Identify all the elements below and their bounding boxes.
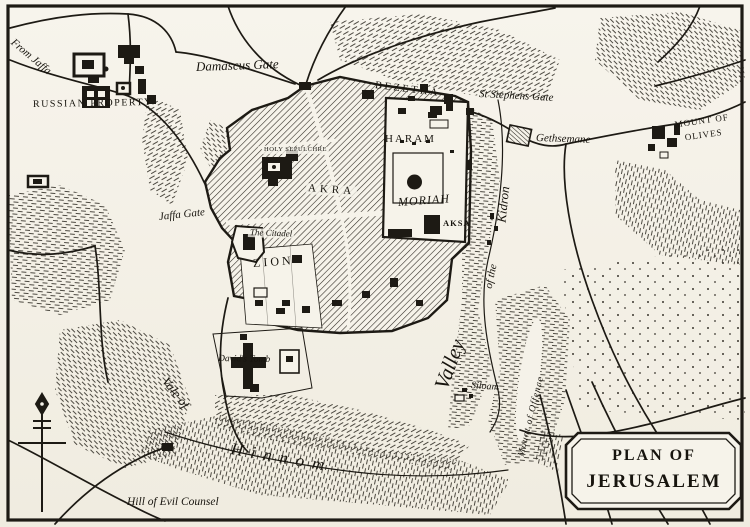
label-zion: ZION	[253, 254, 294, 269]
label-hill-of-evil-counsel: Hill of Evil Counsel	[127, 497, 219, 509]
label-haram: HARAM	[385, 134, 436, 145]
label-russian-property: RUSSIAN PROPERTY	[33, 98, 153, 110]
pool-bethesda	[430, 120, 448, 128]
label-davids-tomb: David's Tomb	[218, 355, 270, 365]
evil-counsel-building	[162, 443, 173, 451]
label-gethsemane: Gethsemane	[536, 133, 591, 146]
aksa-mosque	[424, 215, 440, 234]
label-kidron: Kidron	[495, 186, 512, 224]
gethsemane-garden	[507, 125, 532, 146]
golden-gate-structure	[466, 160, 472, 170]
label-moriah: MORIAH	[398, 192, 451, 208]
label-the-citadel: The Citadel	[248, 228, 295, 239]
dome-of-the-rock	[407, 175, 422, 190]
label-aksa: AKSA	[443, 219, 471, 228]
damascus-gate-structure	[299, 82, 311, 90]
st-stephens-gate-structure	[466, 108, 474, 115]
north-arrow-icon	[18, 394, 66, 512]
west-building	[28, 176, 48, 187]
title-plan-of: PLAN OF	[566, 447, 742, 465]
label-mount-of-olives-line2: OLIVES	[684, 127, 723, 142]
jerusalem-map: From Jaffa RUSSIAN PROPERTY Damascus Gat…	[0, 0, 750, 527]
label-holy-sepulchre: HOLY SEPULCHRE	[262, 147, 329, 154]
label-siloam: Siloam	[471, 381, 499, 393]
title-jerusalem: JERUSALEM	[566, 471, 742, 493]
label-damascus-gate: Damascus Gate	[196, 57, 279, 73]
